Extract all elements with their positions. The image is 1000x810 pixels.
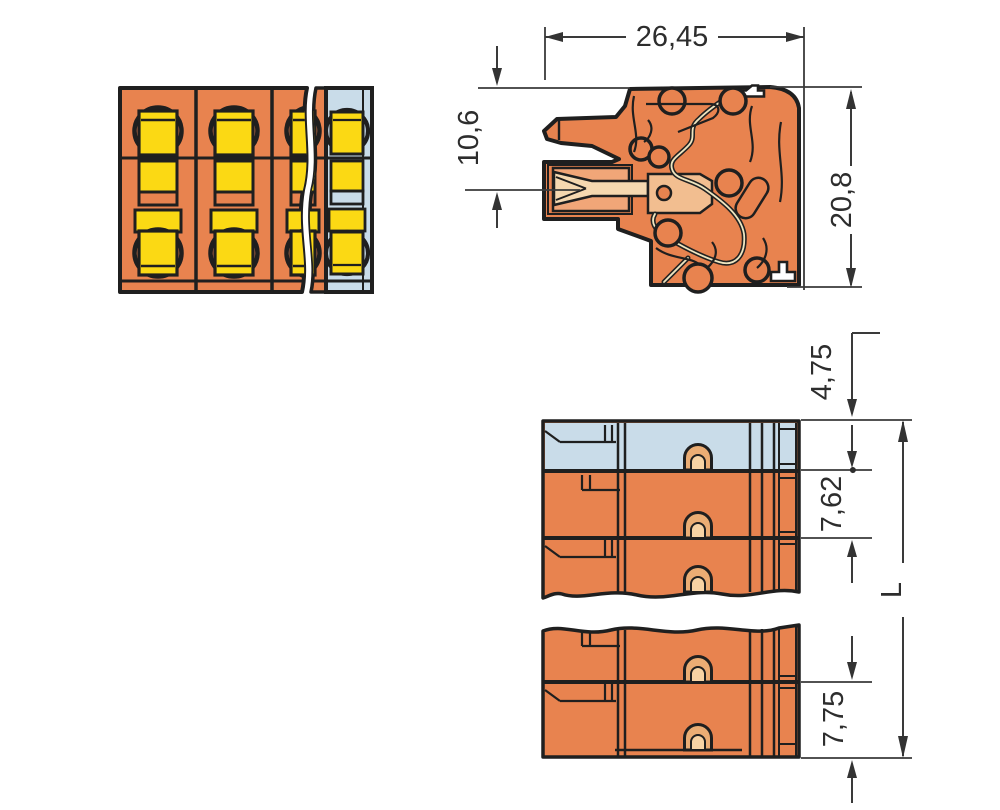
dim-overall-height-label: 20,8 [826,172,858,228]
dim-overall-length: L [876,420,908,758]
notch-pole-n [685,725,712,751]
dim-overall-length-label: L [876,582,908,598]
notch-pole-n1 [685,657,712,683]
end-pole-blue [326,88,372,292]
bottom-view-dimensions: 4,75 7,62 ● L 7,75 [801,333,912,803]
dim-overall-height: 20,8 [826,89,858,288]
notch-pole-1 [685,445,712,471]
front-view [120,88,372,292]
technical-drawing-page: 26,45 10,6 20,8 [0,0,1000,810]
dim-overall-width: 26,45 [545,21,804,53]
dim-entry-height: 10,6 [453,46,502,228]
technical-drawing: 26,45 10,6 20,8 [0,0,1000,810]
side-cross-section-view [544,86,799,293]
dim-end-pole-height: 7,75 [818,636,857,803]
dim-pole-pitch-footnote-dot: ● [849,461,857,477]
dim-pole-pitch-label: 7,62 [816,476,848,532]
dim-end-pole-height-label: 7,75 [818,691,850,747]
end-module-strip [545,423,797,469]
dim-entry-height-label: 10,6 [453,110,485,166]
dim-pole-pitch: 7,62 ● [816,425,857,583]
notch-pole-3 [685,567,712,593]
plate-hole [657,186,671,200]
dim-end-offset-label: 4,75 [806,344,838,400]
dim-end-offset: 4,75 [806,333,880,417]
dim-overall-width-label: 26,45 [636,21,709,53]
notch-pole-2 [685,513,712,539]
bottom-view [543,421,799,757]
